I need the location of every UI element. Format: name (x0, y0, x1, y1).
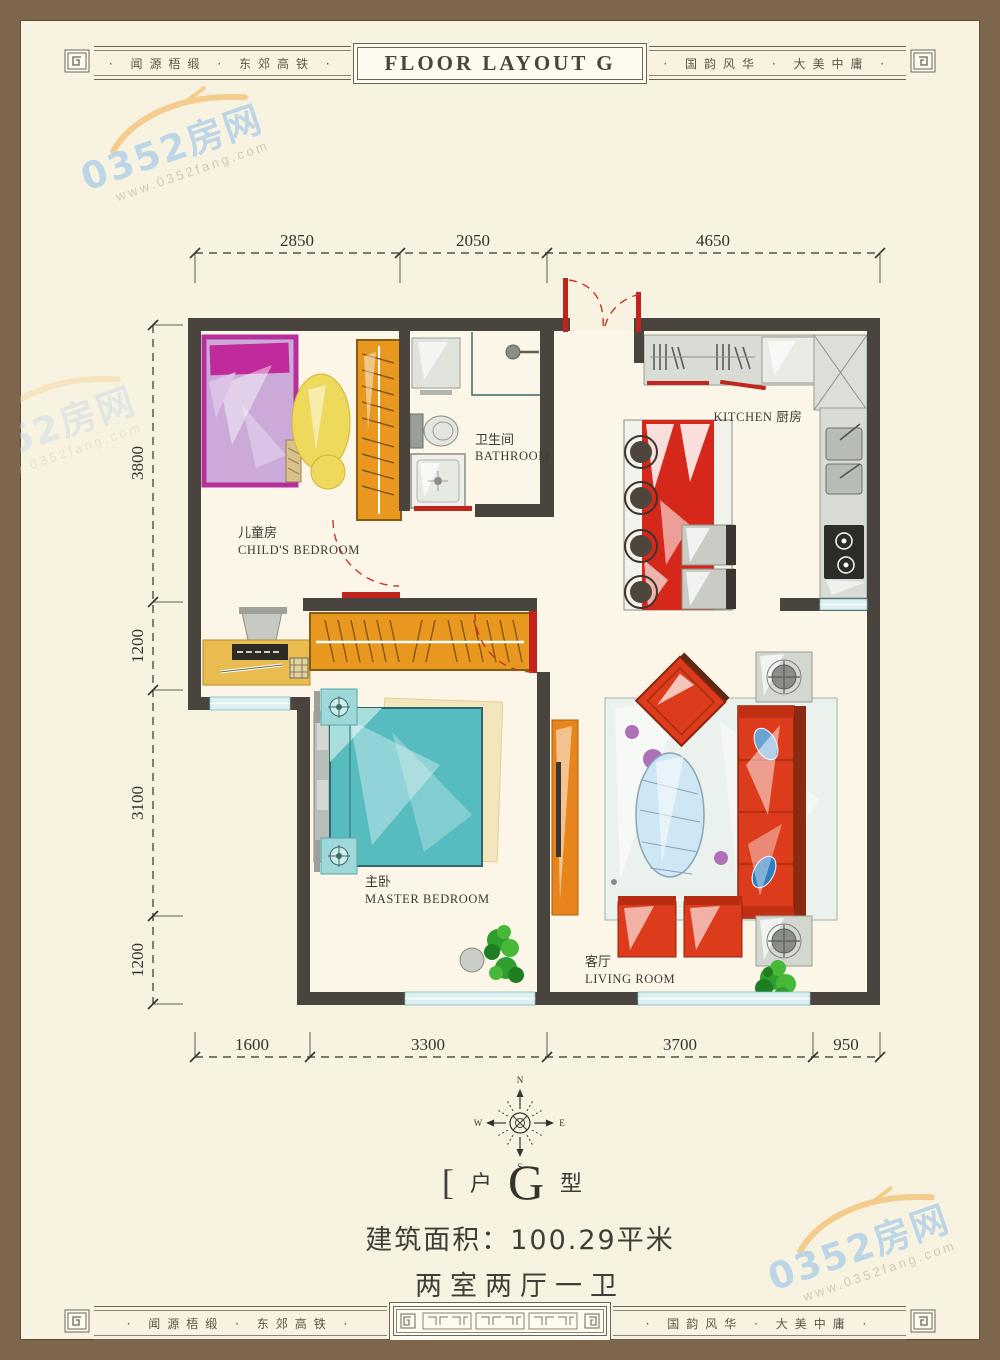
banner-left-text: · 闻源梧缎 · 东郊高铁 · (109, 55, 337, 72)
bathroom-door (414, 506, 472, 511)
greek-key-icon (910, 49, 936, 78)
dim-label: 3300 (411, 1035, 445, 1054)
floor-layout-page: · 闻源梧缎 · 东郊高铁 · FLOOR LAYOUT G · 国韵风华 · … (0, 0, 1000, 1360)
page-title: FLOOR LAYOUT G (357, 47, 642, 80)
master-bedroom-label-zh: 主卧 (365, 875, 391, 890)
living-room-label-zh: 客厅 (585, 954, 611, 970)
dim-label: 1600 (235, 1035, 269, 1054)
window (405, 992, 535, 1005)
window (820, 599, 867, 610)
compass-w: W (474, 1118, 483, 1128)
dimension-top: 2850 2050 4650 (190, 231, 885, 283)
bathroom-label-en: BATHROOM (475, 449, 550, 463)
dim-label: 1200 (128, 943, 147, 977)
shower-head-icon (506, 345, 520, 359)
desk-chair (242, 612, 282, 640)
entry-door-leaf (636, 292, 641, 332)
compass-n: N (517, 1075, 524, 1085)
dim-label: 2050 (456, 231, 490, 250)
bottom-banner-left: · 闻源梧缎 · 东郊高铁 · (94, 1306, 387, 1340)
desk-pad (290, 658, 308, 678)
entry-door-leaf (563, 278, 568, 332)
bracket-left: [ (442, 1161, 454, 1203)
window (638, 992, 810, 1005)
greek-key-icon (64, 49, 90, 78)
dim-label: 3800 (128, 446, 147, 480)
kitchen-label: KITCHEN 厨房 (714, 409, 803, 424)
bottom-banner: · 闻源梧缎 · 东郊高铁 · (60, 1306, 940, 1340)
child-bed-pillow (210, 343, 290, 376)
banner-right-text: · 国韵风华 · 大美中庸 · (646, 1315, 874, 1332)
window (210, 697, 290, 710)
dim-label: 2850 (280, 231, 314, 250)
banner-left-text: · 闻源梧缎 · 东郊高铁 · (127, 1315, 355, 1332)
floor-pot (460, 948, 484, 972)
unit-type-line: [ 户 G 型 (20, 1153, 1000, 1211)
sink-basin (826, 464, 862, 494)
side-table (756, 652, 812, 702)
compass-e: E (559, 1118, 565, 1128)
dim-label: 4650 (696, 231, 730, 250)
bottom-banner-right: · 国韵风华 · 大美中庸 · (613, 1306, 906, 1340)
dimension-bottom: 1600 3300 3700 950 (190, 1032, 885, 1062)
dim-label: 950 (833, 1035, 859, 1054)
bathroom-label-zh: 卫生间 (475, 433, 514, 448)
banner-right-text: · 国韵风华 · 大美中庸 · (663, 55, 891, 72)
unit-type-letter: G (508, 1153, 544, 1211)
nook-door (342, 592, 400, 598)
dim-label: 3100 (128, 786, 147, 820)
living-room-label-en: LIVING ROOM (585, 972, 675, 986)
childs-bedroom-label-zh: 儿童房 (238, 525, 277, 541)
unit-type-suffix: 型 (560, 1166, 582, 1198)
master-door-leaf (529, 611, 537, 673)
sink-basin (826, 428, 862, 460)
toilet-tank (410, 414, 423, 448)
greek-key-icon (64, 1309, 90, 1338)
side-table (756, 916, 812, 966)
greek-key-icon (910, 1309, 936, 1338)
unit-area-text: 建筑面积：100.29平米 (20, 1218, 1000, 1257)
master-bedroom-label-en: MASTER BEDROOM (365, 892, 490, 906)
banner-title-box: FLOOR LAYOUT G (353, 43, 646, 84)
tv (556, 762, 561, 857)
dim-label: 1200 (128, 629, 147, 663)
childs-bedroom-label-en: CHILD'S BEDROOM (238, 543, 360, 557)
lattice-ornament (389, 1302, 611, 1345)
unit-type-prefix: 户 (470, 1166, 492, 1198)
dim-label: 3700 (663, 1035, 697, 1054)
unit-layout-text: 两室两厅一卫 (20, 1264, 1000, 1303)
